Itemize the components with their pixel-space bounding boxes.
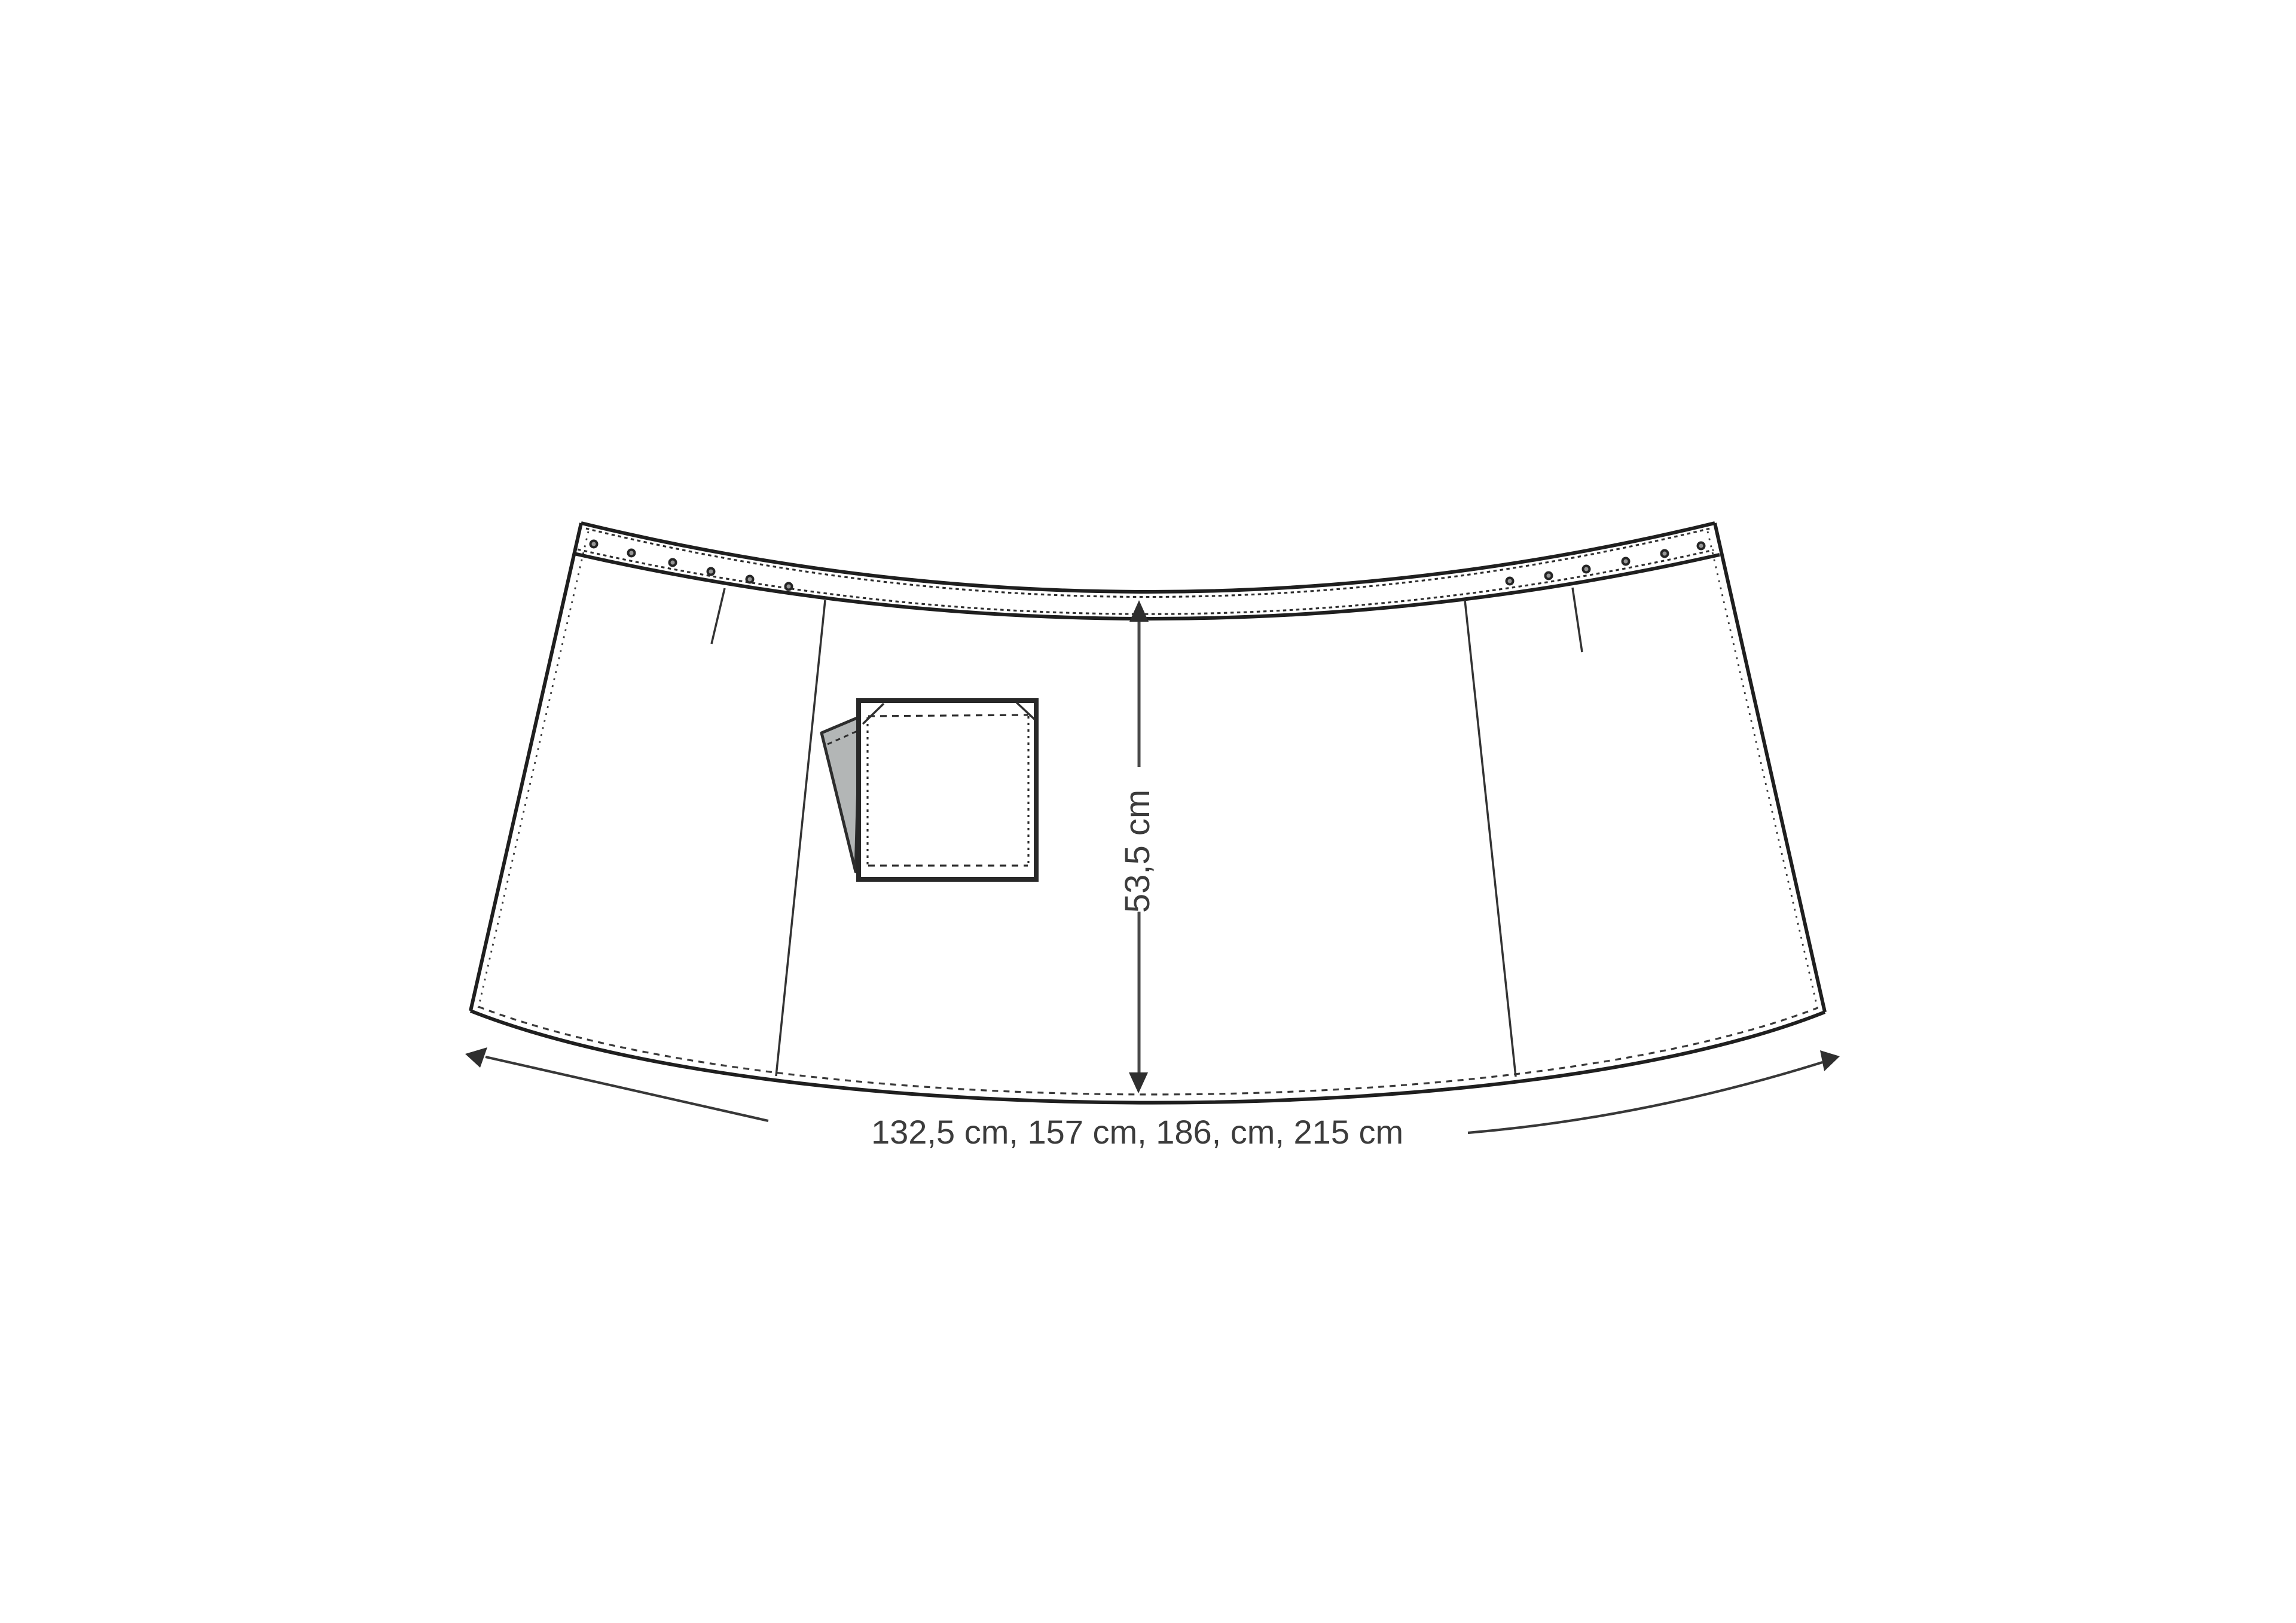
svg-text:53,5 cm: 53,5 cm — [1118, 790, 1157, 913]
svg-text:132,5 cm, 157 cm, 186, cm, 215: 132,5 cm, 157 cm, 186, cm, 215 cm — [871, 1113, 1403, 1151]
